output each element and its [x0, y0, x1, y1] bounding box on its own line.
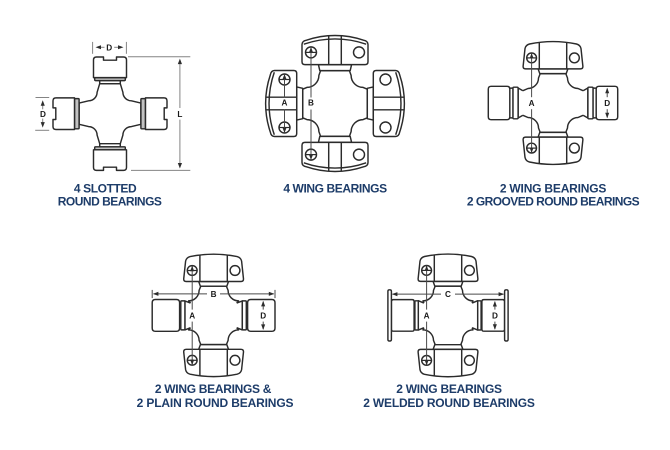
- svg-text:2 PLAIN ROUND BEARINGS: 2 PLAIN ROUND BEARINGS: [137, 396, 294, 410]
- svg-text:B: B: [211, 290, 217, 299]
- svg-text:D: D: [260, 312, 266, 321]
- svg-text:D: D: [492, 312, 498, 321]
- svg-text:A: A: [189, 312, 195, 321]
- svg-text:D: D: [604, 99, 610, 108]
- svg-text:A: A: [424, 312, 430, 321]
- svg-text:D: D: [40, 110, 46, 119]
- svg-text:2 WING BEARINGS &: 2 WING BEARINGS &: [155, 382, 272, 396]
- svg-text:D: D: [106, 43, 112, 52]
- svg-text:4 WING BEARINGS: 4 WING BEARINGS: [283, 182, 387, 196]
- svg-text:A: A: [282, 98, 288, 107]
- svg-text:A: A: [529, 99, 535, 108]
- svg-text:2 WELDED ROUND BEARINGS: 2 WELDED ROUND BEARINGS: [363, 396, 535, 410]
- svg-text:B: B: [308, 98, 314, 107]
- svg-text:2 GROOVED ROUND BEARINGS: 2 GROOVED ROUND BEARINGS: [467, 194, 640, 208]
- svg-text:2 WING BEARINGS: 2 WING BEARINGS: [396, 382, 502, 396]
- svg-text:C: C: [445, 290, 451, 299]
- svg-text:ROUND BEARINGS: ROUND BEARINGS: [58, 194, 162, 208]
- svg-text:L: L: [177, 110, 182, 119]
